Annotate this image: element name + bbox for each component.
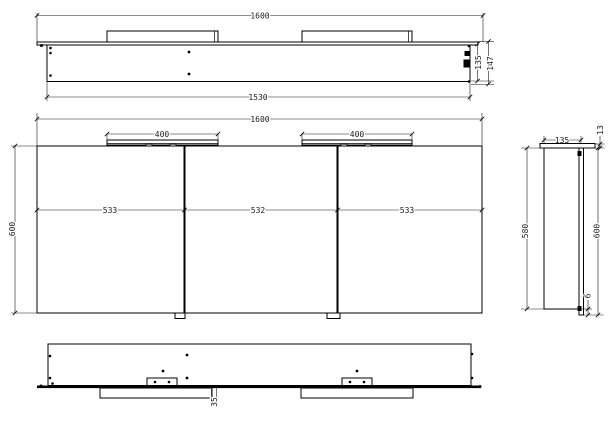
dim-front-left-light-width: 400 bbox=[155, 130, 170, 139]
dim-front-height: 600 bbox=[8, 222, 17, 237]
dim-bottom-offset: 35 bbox=[210, 397, 219, 407]
dim-side-total-height: 600 bbox=[593, 224, 602, 239]
front-view-cabinet-body bbox=[37, 146, 482, 313]
front-view-left-light: 400 bbox=[107, 130, 218, 146]
side-view-hinge-mark-bottom bbox=[578, 306, 582, 311]
top-view-carcass bbox=[47, 45, 470, 82]
side-view: 135 13 580 600 bbox=[521, 125, 605, 315]
top-view-hinge-plate-lower bbox=[464, 60, 471, 68]
dim-front-door-left: 533 bbox=[103, 206, 118, 215]
top-view: 1600 135 bbox=[37, 12, 495, 103]
bottom-view-left-light bbox=[100, 388, 212, 398]
dim-side-bottom-overhang: 6 bbox=[584, 293, 593, 298]
front-view-right-light: 400 bbox=[302, 130, 412, 146]
front-view: 1600 400 400 533 bbox=[8, 113, 482, 319]
front-view-door-divider-left bbox=[184, 146, 186, 313]
dim-front-right-light-width: 400 bbox=[350, 130, 365, 139]
bottom-view-offset-dimension: 35 bbox=[210, 388, 219, 407]
bottom-view-right-junction-box bbox=[342, 378, 372, 386]
side-view-hinge-mark-top bbox=[578, 151, 582, 156]
top-view-left-light bbox=[107, 31, 218, 42]
dim-side-carcass-height: 580 bbox=[521, 224, 530, 239]
mirror-cabinet-drawing: 1600 135 bbox=[0, 0, 609, 433]
side-view-top-panel bbox=[540, 144, 595, 149]
front-view-height-dimension: 600 bbox=[8, 146, 37, 313]
dim-front-overall-width: 1600 bbox=[250, 115, 269, 124]
bottom-view: 35 bbox=[37, 344, 482, 407]
top-view-depth-dimensions: 135 147 bbox=[471, 42, 495, 85]
top-view-hinge-plate-upper bbox=[465, 51, 470, 56]
side-view-mirror-door bbox=[579, 148, 584, 315]
dim-front-door-middle: 532 bbox=[251, 206, 266, 215]
front-view-bottom-tab-right bbox=[327, 313, 340, 319]
dim-top-overall-width: 1600 bbox=[250, 12, 269, 21]
side-view-carcass-height-dimension: 580 bbox=[521, 148, 544, 309]
dim-side-top-detail: 13 bbox=[596, 125, 605, 135]
bottom-view-left-junction-box bbox=[147, 378, 177, 386]
front-view-door-divider-right bbox=[337, 146, 339, 313]
side-view-carcass bbox=[544, 148, 579, 309]
side-view-total-height-dimension: 600 bbox=[584, 148, 604, 315]
top-view-inner-width-dimension: 1530 bbox=[47, 81, 470, 102]
front-view-width-dimension: 1600 bbox=[37, 113, 482, 146]
bottom-view-right-light bbox=[301, 388, 413, 398]
dim-top-carcass-width: 1530 bbox=[248, 93, 267, 102]
top-view-right-light bbox=[302, 31, 412, 42]
top-view-width-dimension: 1600 bbox=[37, 12, 483, 43]
front-view-bottom-tab-left bbox=[175, 313, 185, 319]
dim-front-door-right: 533 bbox=[400, 206, 415, 215]
dim-top-carcass-depth: 135 bbox=[474, 55, 483, 70]
dim-top-total-depth: 147 bbox=[486, 56, 495, 71]
bottom-view-carcass bbox=[48, 344, 471, 386]
technical-drawing-page: 1600 135 bbox=[0, 0, 609, 433]
